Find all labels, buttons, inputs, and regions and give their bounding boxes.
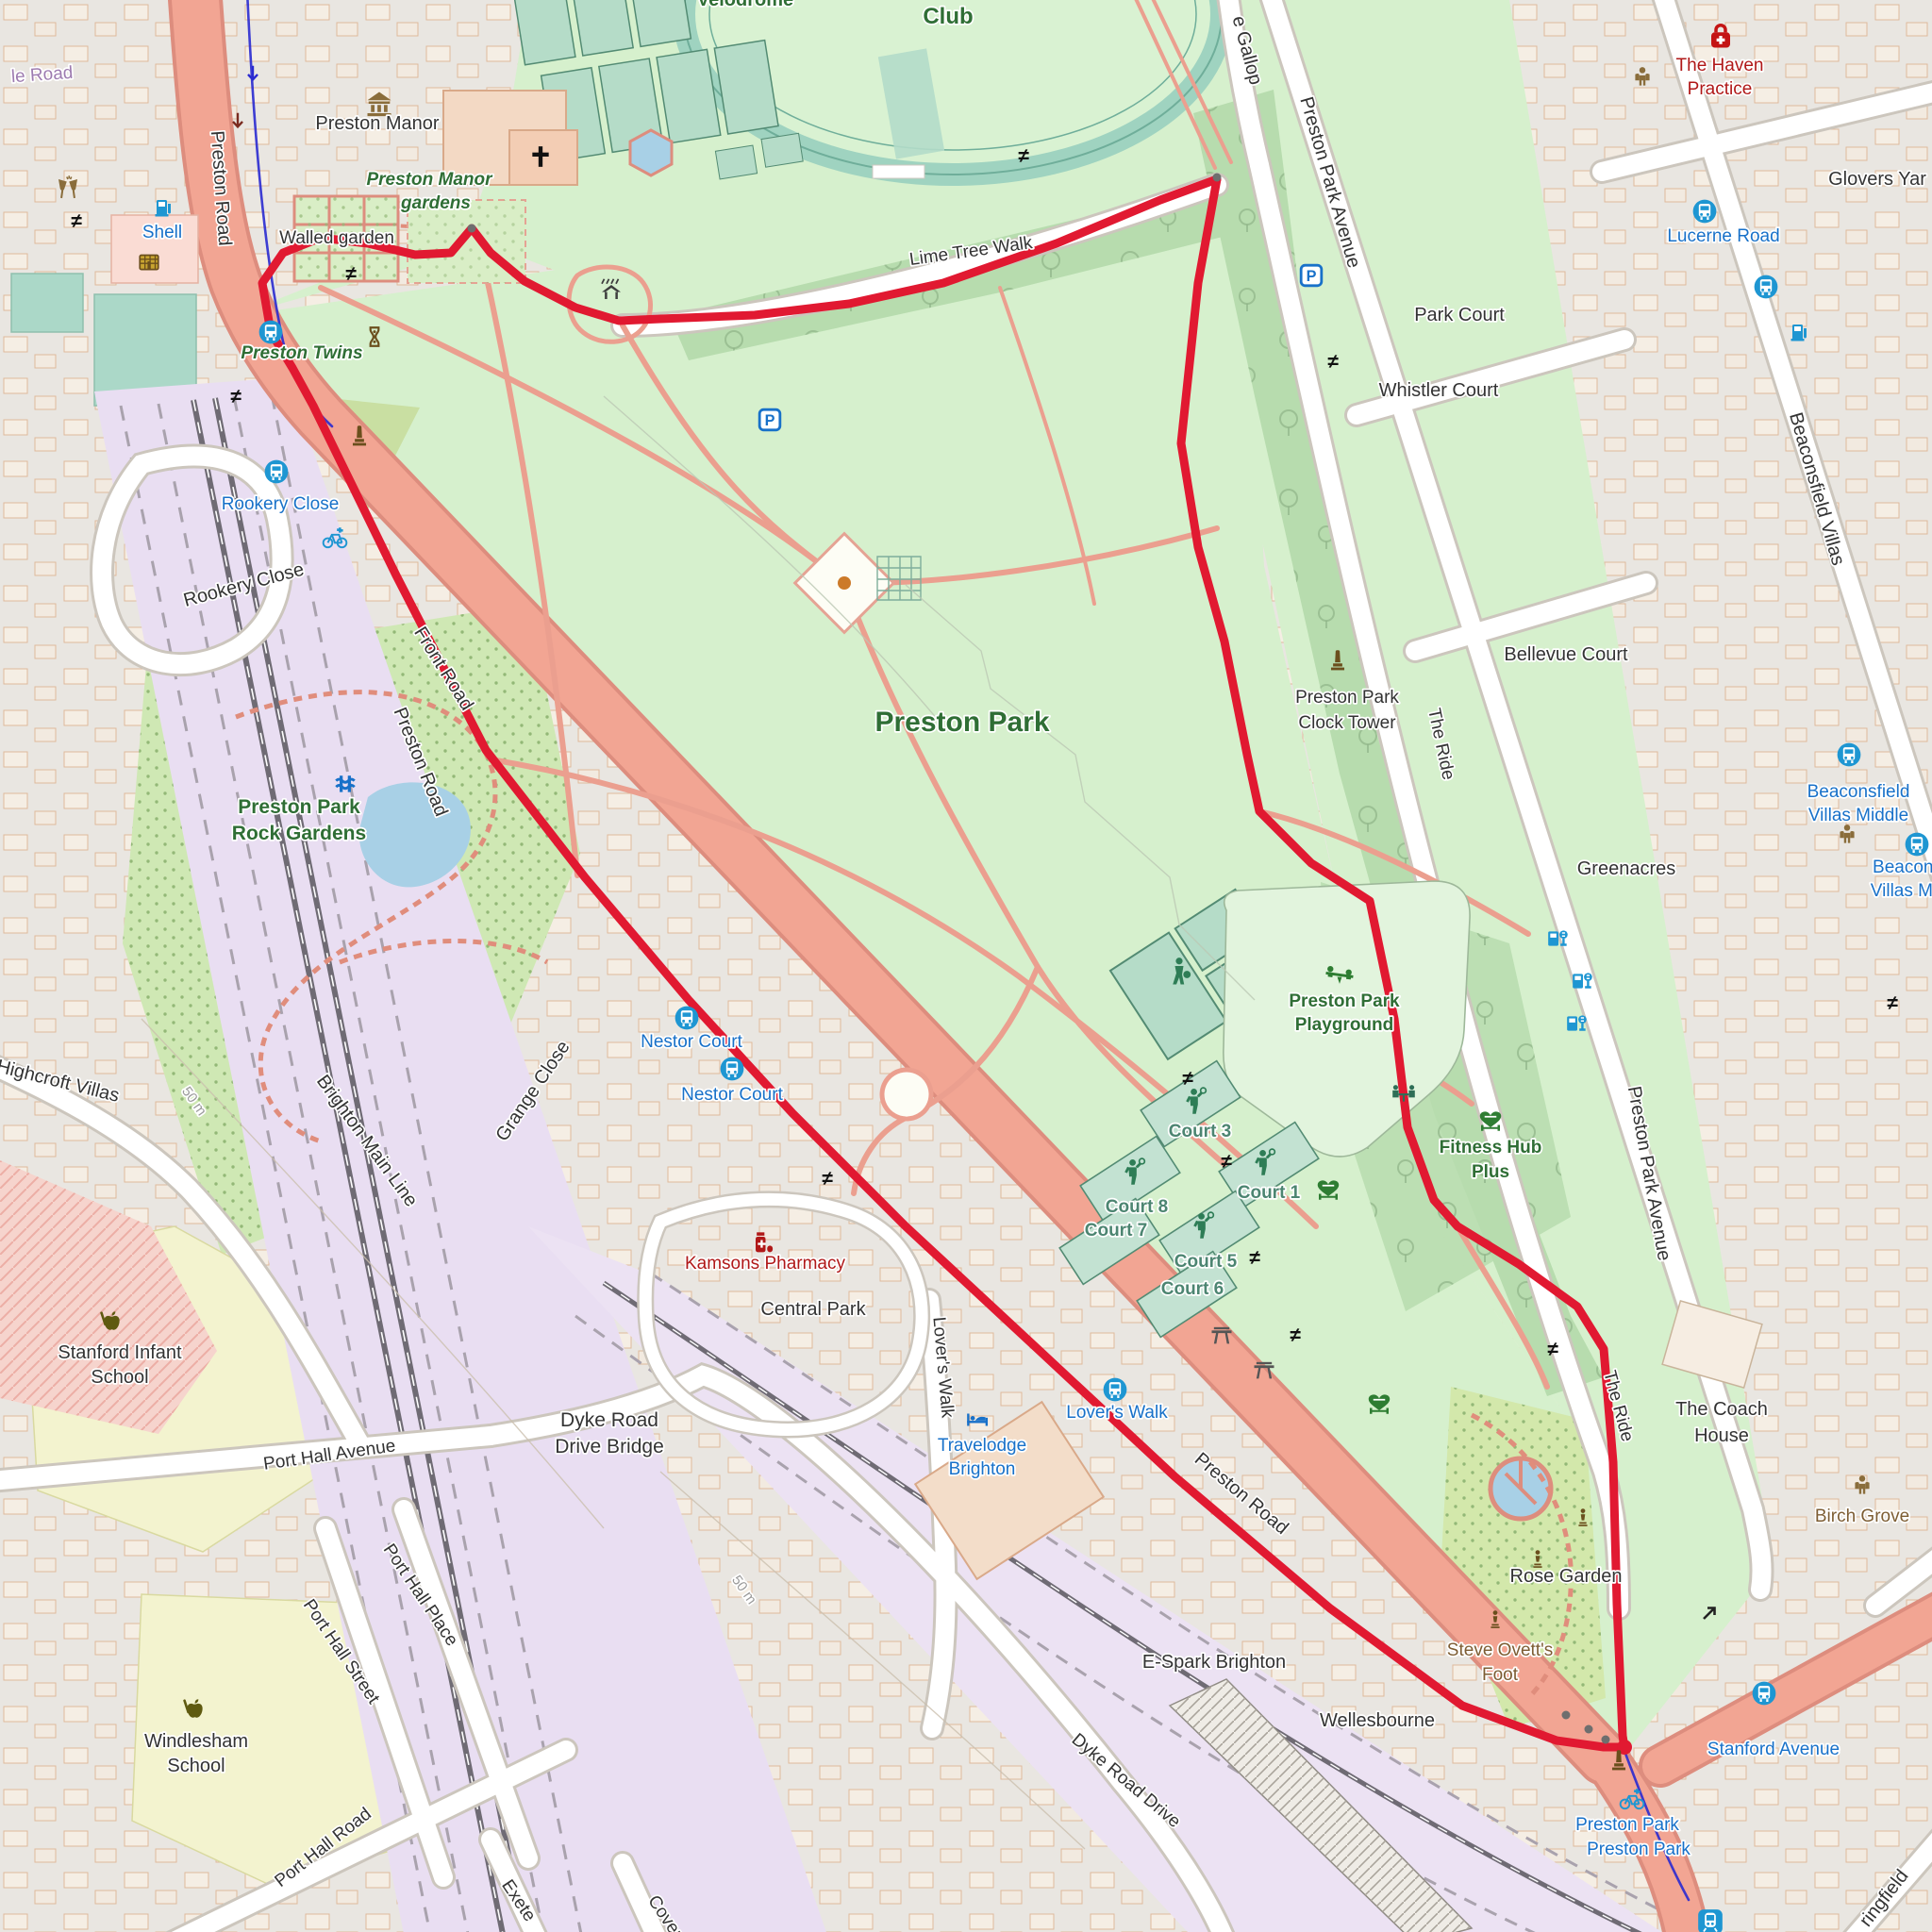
label-preston-park-stop: Preston Park: [1575, 1815, 1679, 1835]
label-preston-manor-gardens-1: Preston Manor: [366, 170, 493, 190]
label-playground-1: Preston Park: [1289, 991, 1400, 1011]
label-whistler-court: Whistler Court: [1379, 380, 1499, 401]
route-waypoint-dot: [1562, 1711, 1571, 1720]
bus-stop-icon: [1755, 275, 1778, 299]
bus-stop-icon: [1906, 833, 1929, 857]
map-viewport[interactable]: ≠≠≠≠≠≠≠≠≠≠≠≠ le RoadPreston RoadPreston …: [0, 0, 1932, 1932]
label-nestor-court-1: Nestor Court: [641, 1032, 742, 1052]
label-nestor-court-2: Nestor Court: [681, 1085, 783, 1105]
label-bellevue-court: Bellevue Court: [1504, 644, 1628, 665]
label-court-3: Court 3: [1169, 1122, 1232, 1141]
bus-stop-icon: [259, 321, 283, 344]
level-crossing-icon: ≠: [1547, 1339, 1558, 1360]
level-crossing-icon: ≠: [230, 386, 241, 408]
route-waypoint-dot: [468, 225, 476, 233]
label-rock-gardens-2: Rock Gardens: [232, 823, 366, 844]
label-glovers-yard: Glovers Yar: [1828, 169, 1926, 190]
label-park-court: Park Court: [1414, 305, 1505, 325]
level-crossing-icon: ≠: [1249, 1247, 1260, 1269]
label-stanford-infant-1: Stanford Infant: [58, 1342, 182, 1363]
label-preston-twins: Preston Twins: [241, 343, 362, 363]
bus-stop-icon: [265, 460, 289, 484]
label-rock-gardens-1: Preston Park: [238, 796, 360, 818]
bus-stop-icon: [1693, 200, 1717, 224]
level-crossing-icon: ≠: [822, 1168, 833, 1190]
label-velodrome: Velodrome: [697, 0, 793, 10]
label-rose-garden: Rose Garden: [1510, 1566, 1623, 1587]
label-windlesham-1: Windlesham: [144, 1731, 248, 1752]
label-lucerne-road: Lucerne Road: [1667, 226, 1779, 246]
parking-icon: [1301, 265, 1322, 286]
bus-stop-icon: [1753, 1682, 1776, 1706]
label-beaconsfield-villas-middle-1: Beaconsfield: [1807, 782, 1910, 802]
label-beaconsfield-villas-middle-2: Villas Middle: [1808, 806, 1908, 825]
label-haven-practice-1: The Haven: [1676, 56, 1764, 75]
label-beacons-clip-2: Villas Mi: [1871, 881, 1932, 901]
label-coach-house-2: House: [1694, 1425, 1749, 1446]
label-dyke-bridge-2: Drive Bridge: [555, 1436, 664, 1457]
label-shell: Shell: [142, 223, 182, 242]
church-building: [509, 130, 577, 185]
label-playground-2: Playground: [1295, 1015, 1394, 1035]
label-clock-tower-2: Clock Tower: [1298, 713, 1396, 733]
bus-stop-icon: [675, 1007, 699, 1030]
convenience-shop-icon: [140, 256, 158, 270]
level-crossing-icon: ≠: [345, 263, 357, 285]
route-waypoint-dot: [1585, 1725, 1593, 1734]
label-wellesbourne: Wellesbourne: [1320, 1710, 1435, 1731]
label-lovers-walk-stop: Lover's Walk: [1066, 1403, 1168, 1423]
label-clock-tower-1: Preston Park: [1295, 688, 1399, 708]
label-kamsons-pharmacy: Kamsons Pharmacy: [685, 1254, 846, 1274]
level-crossing-icon: ≠: [1182, 1068, 1193, 1090]
label-rookery-close-stop: Rookery Close: [222, 494, 340, 514]
level-crossing-icon: ≠: [1221, 1151, 1232, 1173]
manor-pond: [630, 130, 672, 175]
label-greenacres: Greenacres: [1577, 858, 1676, 879]
label-coach-house-1: The Coach: [1675, 1399, 1768, 1420]
rail-station-icon: [1698, 1909, 1723, 1932]
route-waypoint-dot: [1213, 174, 1222, 182]
level-crossing-icon: ≠: [1887, 992, 1898, 1014]
label-stanford-avenue: Stanford Avenue: [1707, 1740, 1840, 1759]
label-preston-manor-gardens-2: gardens: [400, 193, 471, 213]
label-fitness-hub-2: Plus: [1472, 1162, 1509, 1182]
label-court-5: Court 5: [1174, 1252, 1238, 1272]
route-waypoint-dot: [1602, 1736, 1610, 1744]
label-windlesham-2: School: [167, 1756, 225, 1776]
label-court-6: Court 6: [1161, 1279, 1224, 1299]
label-preston-manor: Preston Manor: [315, 113, 440, 134]
pitch-west-2: [11, 274, 83, 332]
label-dyke-bridge-1: Dyke Road: [560, 1409, 658, 1431]
level-crossing-icon: ≠: [1290, 1324, 1301, 1346]
parking-icon: [759, 409, 780, 430]
label-club: Club: [923, 4, 973, 29]
label-beacons-clip-1: Beacons: [1873, 858, 1932, 877]
bus-stop-icon: [1104, 1378, 1127, 1402]
label-travelodge-1: Travelodge: [938, 1436, 1026, 1456]
label-preston-park-station: Preston Park: [1587, 1840, 1690, 1859]
level-crossing-icon: ≠: [1327, 351, 1339, 373]
label-e-spark: E-Spark Brighton: [1142, 1652, 1286, 1673]
label-central-park: Central Park: [760, 1299, 866, 1320]
label-birch-grove: Birch Grove: [1815, 1507, 1909, 1526]
bus-stop-icon: [721, 1058, 744, 1081]
label-stanford-infant-2: School: [91, 1367, 148, 1388]
bus-stop-icon: [1838, 743, 1861, 767]
label-travelodge-2: Brighton: [949, 1459, 1016, 1479]
label-steve-ovett-2: Foot: [1482, 1665, 1519, 1685]
label-steve-ovett-1: Steve Ovett's: [1447, 1641, 1553, 1660]
label-court-8: Court 8: [1106, 1197, 1169, 1217]
map-canvas[interactable]: ≠≠≠≠≠≠≠≠≠≠≠≠ le RoadPreston RoadPreston …: [0, 0, 1932, 1932]
label-preston-park-main: Preston Park: [874, 707, 1049, 738]
label-fitness-hub-1: Fitness Hub: [1440, 1138, 1542, 1158]
label-walled-garden: Walled garden: [279, 228, 394, 248]
level-crossing-icon: ≠: [71, 210, 82, 232]
label-haven-practice-2: Practice: [1688, 79, 1753, 99]
level-crossing-icon: ≠: [1018, 145, 1029, 167]
label-court-7: Court 7: [1085, 1221, 1148, 1241]
label-court-1: Court 1: [1238, 1183, 1301, 1203]
